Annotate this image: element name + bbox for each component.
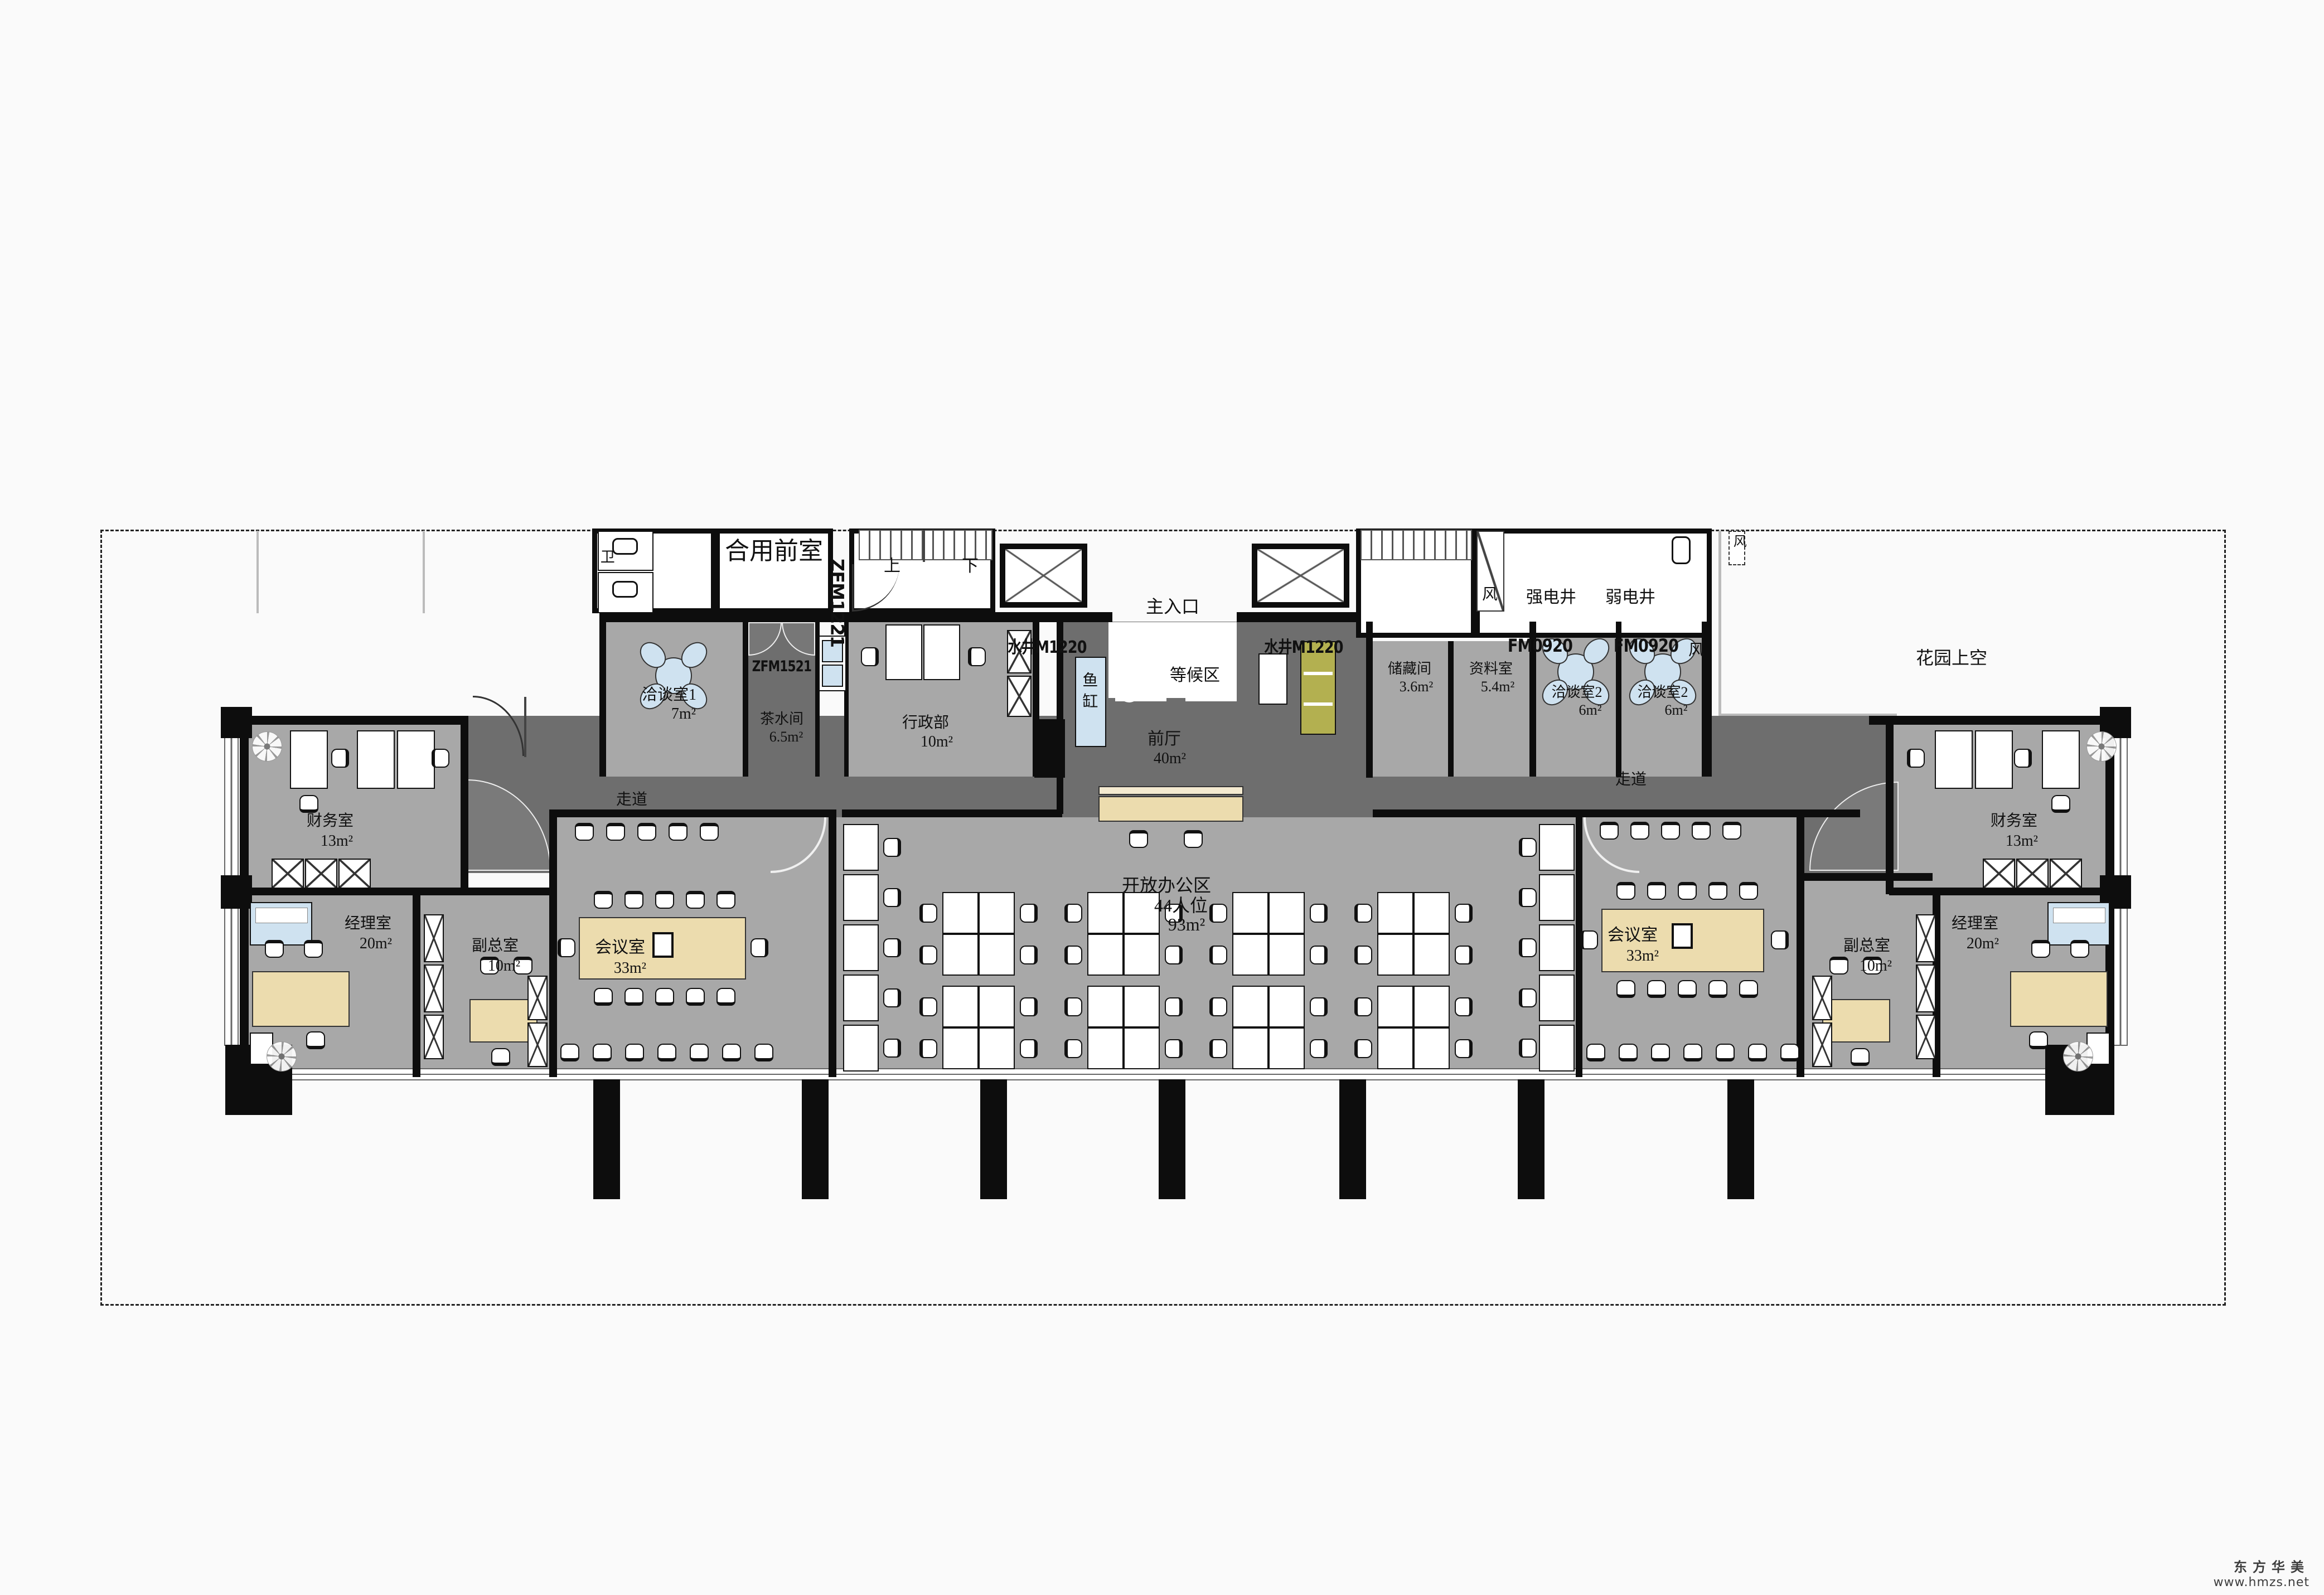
chair [1209, 1039, 1227, 1058]
label-finance-left-area: 13m² [321, 833, 353, 849]
label-manager-right-area: 20m² [1967, 935, 1999, 952]
label-fish-tank: 鱼缸 [1081, 672, 1097, 714]
pier [802, 1079, 829, 1199]
label-strong-shaft: 强电井 [1526, 589, 1576, 607]
wall [1886, 716, 1894, 894]
xbox [1916, 1015, 1936, 1059]
label-conference-right-area: 33m² [1626, 948, 1659, 964]
label-meeting2a-name: 洽谈室2 [1551, 685, 1602, 700]
chair [919, 904, 937, 923]
chair [883, 988, 901, 1007]
wall [1889, 888, 2112, 895]
toi [1672, 536, 1691, 564]
label-tea-area: 6.5m² [769, 729, 803, 744]
chair [299, 795, 318, 813]
label-storage-name: 储藏间 [1388, 661, 1431, 676]
wall [1373, 809, 1576, 817]
xbox [527, 1022, 548, 1067]
chair [1722, 822, 1741, 840]
chair [883, 1039, 901, 1058]
xbox [1916, 964, 1936, 1012]
desk [843, 975, 879, 1021]
chair [1780, 1044, 1799, 1061]
chair [1310, 946, 1328, 964]
chair [883, 888, 901, 907]
xbox [1983, 859, 2015, 889]
chair [1678, 980, 1697, 998]
chair [716, 988, 735, 1006]
desk [979, 986, 1015, 1027]
part [1718, 531, 1721, 715]
chair [1020, 904, 1038, 923]
label-finance-right-name: 财务室 [1991, 813, 2037, 829]
chair [669, 823, 687, 841]
treads [859, 530, 992, 560]
desk [1672, 923, 1693, 949]
label-main-entrance: 主入口 [1146, 598, 1199, 617]
wall [1804, 873, 1933, 881]
chair [919, 1039, 937, 1058]
chair [304, 940, 323, 958]
label-admin-name: 行政部 [902, 715, 949, 731]
label-stair-up: 上 [884, 557, 900, 575]
chair [1771, 930, 1789, 949]
label-water-well-right: 水井M1220 [1264, 639, 1343, 657]
chair [560, 1044, 579, 1061]
chair [1064, 904, 1082, 923]
chair [1064, 997, 1082, 1016]
desk [1268, 892, 1305, 934]
label-water-well-left: 水井M1220 [1008, 639, 1086, 657]
chair [265, 940, 284, 958]
desk [1087, 934, 1124, 976]
label-weak-shaft: 弱电井 [1605, 589, 1655, 607]
chair [1209, 904, 1227, 923]
chair [1708, 980, 1727, 998]
white [1185, 697, 1237, 701]
elevator-right [1252, 544, 1349, 608]
desk [942, 892, 979, 934]
chair [754, 1044, 773, 1061]
label-fm0920-left: FM0920 [1508, 637, 1572, 656]
chair [594, 988, 613, 1006]
toi [612, 581, 638, 598]
chair [655, 891, 674, 909]
desk [1539, 824, 1575, 871]
xbox [272, 859, 304, 889]
wall [240, 716, 468, 725]
wall [599, 612, 1112, 622]
chair [624, 988, 643, 1006]
label-meeting2a-area: 6m² [1579, 702, 1601, 717]
chair [625, 1044, 644, 1061]
chair [968, 647, 986, 666]
xbox [1916, 914, 1936, 962]
wall [1448, 641, 1454, 777]
chair [1647, 980, 1666, 998]
label-corridor-right: 走道 [1615, 772, 1647, 788]
label-wc: 卫 [599, 549, 614, 564]
wall [1237, 612, 1359, 622]
pier [221, 875, 252, 909]
desk [942, 934, 979, 976]
desk [290, 730, 328, 789]
wall [1869, 716, 2114, 725]
wall [461, 716, 468, 894]
chair [1651, 1044, 1670, 1061]
label-meeting1-area: 7m² [671, 706, 696, 722]
label-conference-right-name: 会议室 [1608, 927, 1658, 944]
chair [1683, 1044, 1702, 1061]
desk [1539, 1025, 1575, 1072]
wall [842, 809, 1062, 817]
desk [1124, 986, 1160, 1027]
xbox [1812, 1022, 1832, 1067]
blue [822, 665, 843, 687]
wall [465, 888, 557, 895]
xbox [424, 964, 444, 1012]
chair [1310, 997, 1328, 1016]
toi [612, 538, 638, 555]
chair [2031, 940, 2050, 958]
chair [1519, 1039, 1537, 1058]
chair [558, 938, 575, 957]
chair [1354, 946, 1372, 964]
chair [1165, 1039, 1183, 1058]
chair [657, 1044, 676, 1061]
plant [2063, 1041, 2093, 1072]
label-corridor-left: 走道 [616, 792, 647, 808]
chair [1716, 1044, 1735, 1061]
desk [1087, 892, 1124, 934]
chair [1616, 980, 1635, 998]
desk [942, 1027, 979, 1069]
label-conference-left-area: 33m² [614, 960, 646, 976]
chair [2051, 795, 2070, 813]
chair [919, 946, 937, 964]
pier [593, 1079, 620, 1199]
wall [1034, 719, 1065, 778]
desk [1268, 934, 1305, 976]
desk [1377, 934, 1413, 976]
pier [1339, 1079, 1366, 1199]
plant [252, 731, 282, 762]
chair [432, 749, 449, 768]
desk [1087, 1027, 1124, 1069]
chair [722, 1044, 741, 1061]
label-deputy-right-name: 副总室 [1843, 938, 1890, 954]
part [423, 531, 425, 613]
label-tea-name: 茶水间 [760, 711, 803, 726]
chair [593, 1044, 612, 1061]
desk [1124, 934, 1160, 976]
tan [1098, 796, 1243, 822]
chair [1519, 988, 1537, 1007]
chair [2014, 749, 2032, 768]
xbox [424, 1015, 444, 1059]
label-conference-left-name: 会议室 [595, 939, 645, 957]
wall [743, 622, 748, 777]
chair [1748, 1044, 1767, 1061]
chair [1455, 904, 1473, 923]
watermark-url: www.hmzs.net [2214, 1575, 2310, 1589]
chair [1519, 838, 1537, 857]
label-vent-right: 风 [1688, 642, 1704, 658]
label-finance-left-name: 财务室 [307, 813, 354, 829]
chair [637, 823, 656, 841]
label-open-office-seats: 44人位 [1154, 896, 1208, 915]
chair [751, 938, 768, 957]
chair [2070, 940, 2089, 958]
label-admin-area: 10m² [921, 734, 953, 750]
label-vent-left: 风 [1482, 586, 1498, 603]
win [248, 1068, 2105, 1080]
chair [1020, 946, 1038, 964]
desk [1124, 1027, 1160, 1069]
label-manager-left-name: 经理室 [345, 915, 391, 932]
desk [1232, 892, 1268, 934]
wall [599, 622, 606, 777]
label-hall-area: 40m² [1154, 750, 1186, 767]
treads [1360, 530, 1472, 560]
wall [1576, 809, 1860, 817]
desk [885, 624, 922, 680]
chair [655, 988, 674, 1006]
chair [1739, 980, 1758, 998]
desk [1268, 1027, 1305, 1069]
label-meeting2b-area: 6m² [1664, 702, 1687, 717]
label-finance-right-area: 13m² [2006, 833, 2038, 849]
watermark-brand: 东方华美 [2214, 1556, 2310, 1575]
plant [2086, 731, 2117, 762]
desk [2042, 730, 2080, 789]
elevator-left [1000, 544, 1087, 608]
desk [942, 986, 979, 1027]
floor-plan: 卫 合用前室 ZFM1221 上 下 水井M1220 水井M1220 主入口 风… [0, 0, 2324, 1595]
chair [1619, 1044, 1638, 1061]
wall [1366, 622, 1373, 778]
chair [1165, 946, 1183, 964]
chair [861, 647, 879, 666]
chair [1310, 904, 1328, 923]
desk [357, 730, 395, 789]
label-deputy-right-area: 10m² [1860, 958, 1892, 974]
xbox [305, 859, 337, 889]
desk [979, 1027, 1015, 1069]
chair [606, 823, 625, 841]
chair [1647, 882, 1666, 900]
desk [1975, 730, 2013, 789]
chair [1851, 1048, 1870, 1066]
label-manager-right-name: 经理室 [1952, 915, 1998, 932]
chair [1020, 997, 1038, 1016]
chair [1519, 938, 1537, 957]
label-vent-garden: 风 [1731, 534, 1745, 547]
chair [1678, 882, 1697, 900]
plant [267, 1041, 297, 1072]
label-door-zfm1221: ZFM1221 [827, 559, 846, 647]
label-archive-name: 资料室 [1469, 661, 1513, 676]
chair [883, 838, 901, 857]
thin [923, 530, 925, 562]
label-hall-name: 前厅 [1148, 730, 1181, 748]
chair [1455, 997, 1473, 1016]
desk [979, 892, 1015, 934]
desk [1539, 874, 1575, 921]
desk [1413, 934, 1450, 976]
chair [686, 988, 705, 1006]
label-stair-down: 下 [962, 557, 979, 575]
chair [1064, 946, 1082, 964]
white [255, 908, 308, 923]
xbox [424, 914, 444, 962]
desk [1268, 986, 1305, 1027]
desk [1232, 934, 1268, 976]
wall [1797, 809, 1804, 1077]
white [1304, 672, 1333, 675]
chair [331, 749, 349, 768]
chair [1184, 830, 1203, 848]
desk [1258, 653, 1287, 705]
desk [843, 824, 879, 871]
chair [1020, 1039, 1038, 1058]
wall [829, 809, 836, 1077]
label-deputy-left-area: 10m² [488, 958, 520, 974]
desk [1539, 924, 1575, 971]
chair [1580, 930, 1598, 949]
chair [1209, 946, 1227, 964]
chair [2029, 1031, 2048, 1049]
wall [556, 809, 835, 817]
desk [843, 1025, 879, 1072]
tan [252, 971, 350, 1027]
chair [1616, 882, 1635, 900]
desk [1413, 986, 1450, 1027]
tan [2010, 971, 2108, 1027]
desk [843, 874, 879, 921]
desk [979, 934, 1015, 976]
tan2 [1098, 786, 1243, 795]
watermark: 东方华美 www.hmzs.net [2214, 1556, 2310, 1589]
chair [919, 997, 937, 1016]
desk [1935, 730, 1973, 789]
chair [1708, 882, 1727, 900]
label-open-office-area: 93m² [1168, 915, 1205, 934]
pier [1159, 1079, 1185, 1199]
chair [1354, 904, 1372, 923]
pier [980, 1079, 1007, 1199]
chair [1354, 997, 1372, 1016]
pier [1727, 1079, 1754, 1199]
label-deputy-left-name: 副总室 [472, 938, 519, 954]
thin [524, 697, 526, 757]
desk [1377, 1027, 1413, 1069]
desk [1413, 892, 1450, 934]
chair [1739, 882, 1758, 900]
part [256, 531, 259, 613]
chair [690, 1044, 709, 1061]
chair [491, 1048, 510, 1066]
chair [686, 891, 705, 909]
xbox [338, 859, 371, 889]
wcirc [1119, 681, 1140, 702]
chair [1907, 749, 1925, 768]
chair [1354, 1039, 1372, 1058]
label-archive-area: 5.4m² [1481, 679, 1515, 694]
chair [1829, 957, 1848, 975]
wall [248, 888, 465, 895]
label-storage-area: 3.6m² [1400, 679, 1434, 694]
white [2053, 908, 2105, 923]
chair [594, 891, 613, 909]
desk [1232, 986, 1268, 1027]
desk [843, 924, 879, 971]
pier [221, 707, 252, 738]
desk [1087, 986, 1124, 1027]
desk [923, 624, 960, 680]
xbox [2050, 859, 2082, 889]
chair [1600, 822, 1619, 840]
label-manager-left-area: 20m² [360, 935, 392, 952]
desk [1539, 975, 1575, 1021]
chair [1661, 822, 1680, 840]
chair [1630, 822, 1649, 840]
chair [1209, 997, 1227, 1016]
chair [575, 823, 594, 841]
white [1304, 702, 1333, 706]
label-garden: 花园上空 [1916, 649, 1987, 668]
chair [1165, 997, 1183, 1016]
desk [1413, 1027, 1450, 1069]
xbox [1007, 676, 1032, 717]
chair [1586, 1044, 1605, 1061]
chair [1692, 822, 1711, 840]
chair [1455, 946, 1473, 964]
chair [1310, 1039, 1328, 1058]
label-meeting1-name: 洽谈室1 [642, 687, 696, 703]
desk [1232, 1027, 1268, 1069]
chair [1129, 830, 1148, 848]
wall [549, 809, 557, 1077]
tan [1822, 999, 1890, 1043]
label-shared-front-room: 合用前室 [725, 539, 823, 564]
chair [624, 891, 643, 909]
chair [716, 891, 735, 909]
label-fm0920-right: FM0920 [1614, 637, 1678, 656]
chair [1455, 1039, 1473, 1058]
xbox [1812, 976, 1832, 1020]
desk [397, 730, 435, 789]
label-open-office-name: 开放办公区 [1122, 876, 1211, 895]
chair [883, 938, 901, 957]
desk [1377, 892, 1413, 934]
pier [1518, 1079, 1545, 1199]
chair [306, 1031, 325, 1049]
label-waiting-area: 等候区 [1170, 667, 1220, 685]
label-meeting2b-name: 洽谈室2 [1637, 685, 1688, 700]
desk [1377, 986, 1413, 1027]
xbox [2016, 859, 2049, 889]
desk [652, 932, 674, 958]
label-door-zfm1521: ZFM1521 [752, 659, 811, 675]
xbox [527, 976, 548, 1020]
chair [1064, 1039, 1082, 1058]
chair [1519, 888, 1537, 907]
chair [700, 823, 719, 841]
wall [413, 895, 420, 1077]
